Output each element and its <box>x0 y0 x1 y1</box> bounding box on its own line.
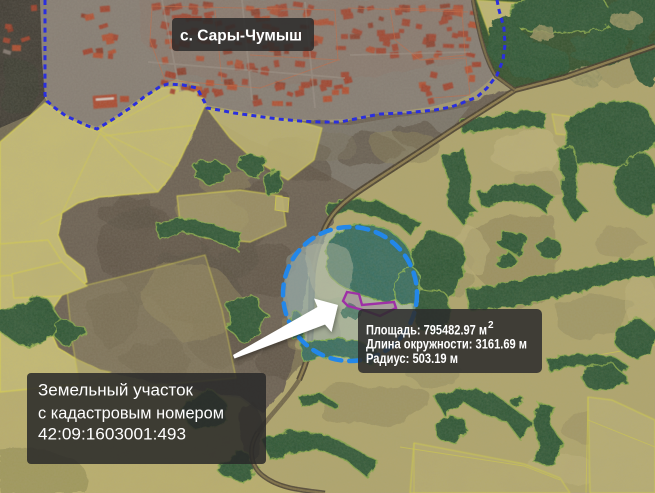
svg-text:42:09:1603001:493: 42:09:1603001:493 <box>38 425 186 444</box>
svg-text:Радиус: 503.19 м: Радиус: 503.19 м <box>366 350 458 366</box>
svg-text:2: 2 <box>488 320 494 331</box>
svg-text:с кадастровым номером: с кадастровым номером <box>38 404 224 423</box>
svg-text:Земельный участок: Земельный участок <box>38 381 194 400</box>
svg-text:с. Сары-Чумыш: с. Сары-Чумыш <box>180 28 302 45</box>
